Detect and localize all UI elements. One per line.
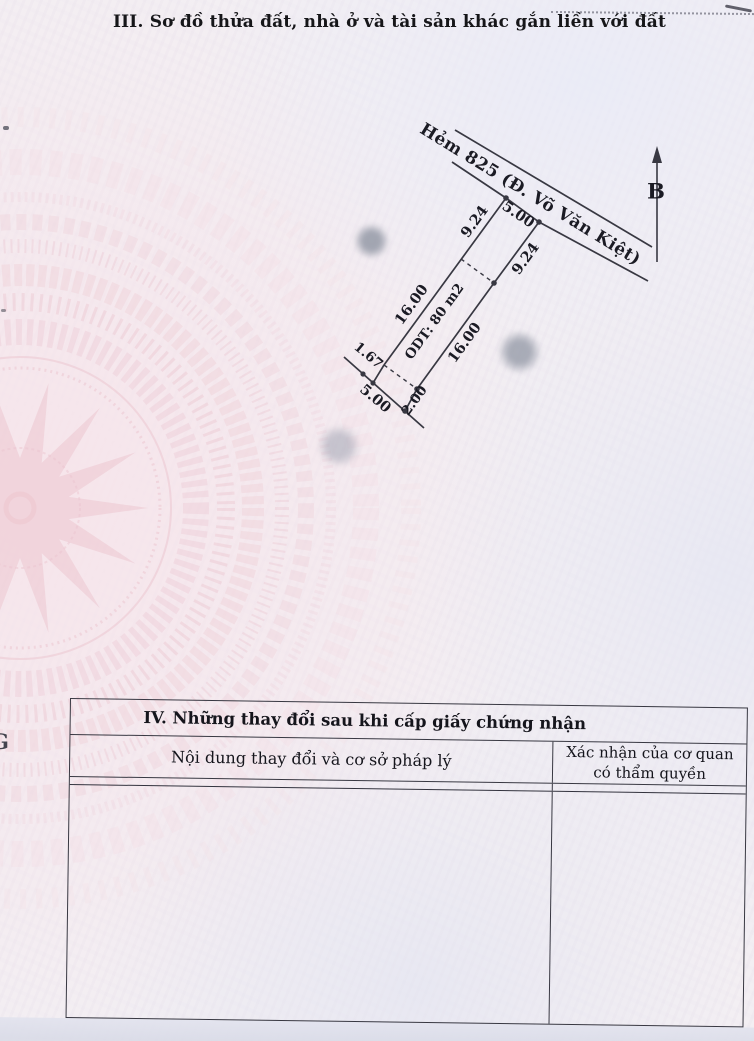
dim-right-front: 9.24 [508, 239, 543, 278]
col2-header-line2: có thẩm quyền [593, 763, 706, 784]
plot-right-edge [405, 222, 539, 411]
plot-left-edge [384, 198, 506, 365]
col2-header-cell: Xác nhận của cơ quan có thẩm quyền [553, 742, 746, 786]
dim-rear-width: 5.00 [356, 381, 394, 417]
col2-header-line1: Xác nhận của cơ quan [566, 743, 734, 765]
north-arrow-head [652, 146, 662, 163]
col1-header: Nội dung thay đổi và cơ sở pháp lý [171, 747, 452, 770]
corner-dot [536, 219, 542, 225]
north-label: B [647, 179, 665, 204]
col1-body-cell [67, 785, 554, 1024]
col1-header-cell: Nội dung thay đổi và cơ sở pháp lý [70, 735, 554, 783]
corner-dot [360, 371, 365, 376]
setback-dashed-line [461, 259, 494, 283]
page-container: III. Sơ đồ thửa đất, nhà ở và tài sản kh… [0, 0, 754, 1041]
section4-table: IV. Những thay đổi sau khi cấp giấy chứn… [66, 698, 748, 1027]
corner-dot [491, 280, 497, 286]
plot-rear-dashed-line [384, 365, 417, 389]
section4-title: IV. Những thay đổi sau khi cấp giấy chứn… [143, 708, 586, 733]
col2-body-cell [550, 792, 746, 1027]
dim-rear-offset-right: 2.00 [398, 383, 430, 419]
dim-left-front: 9.24 [457, 202, 492, 241]
table-body-row [67, 785, 746, 1026]
